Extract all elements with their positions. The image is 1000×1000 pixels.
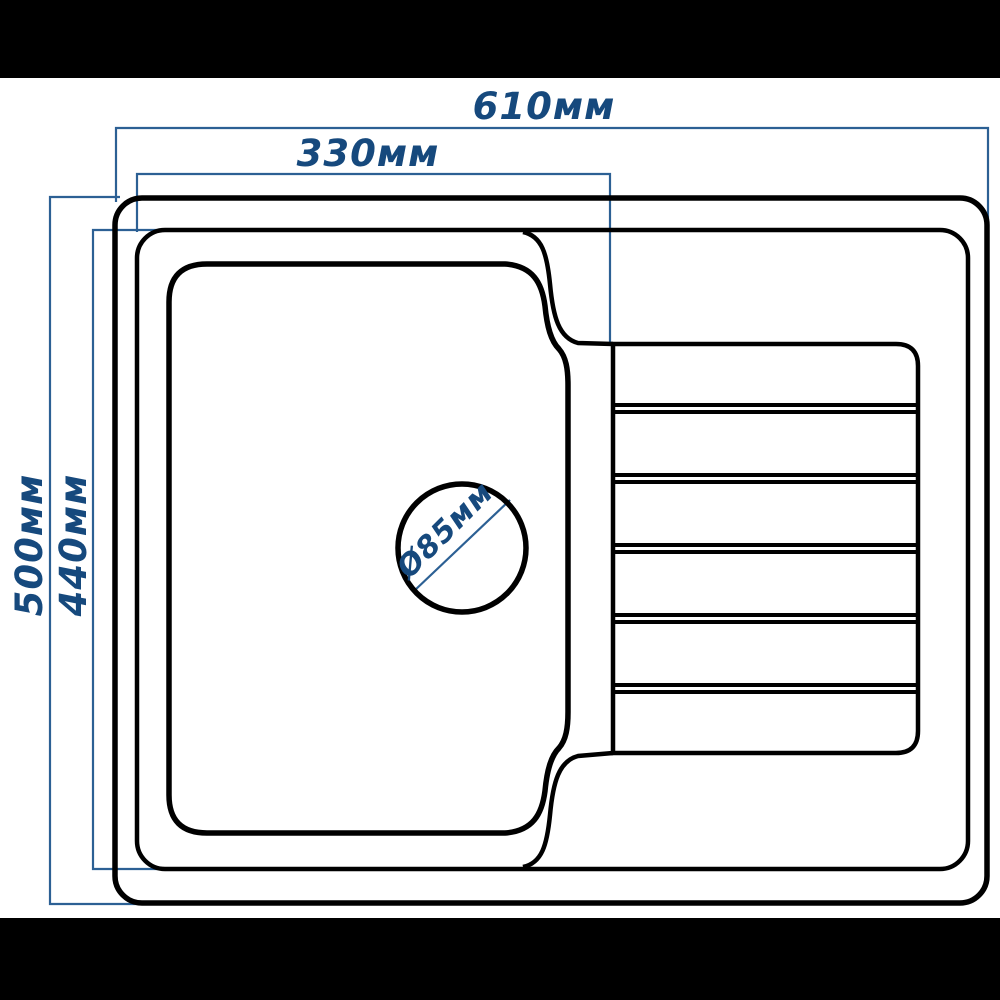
label-inner-depth: 440мм — [52, 474, 95, 618]
dimension-line-440 — [93, 230, 160, 869]
label-bowl-width: 330мм — [297, 132, 440, 175]
letterbox-top-bar — [0, 0, 1000, 78]
drainboard-neck-upper-curve — [523, 232, 613, 344]
bowl-outline — [169, 264, 568, 833]
sink-rim-outline — [137, 230, 968, 869]
label-overall-width: 610мм — [473, 85, 616, 128]
drainboard-neck-lower-curve — [523, 753, 613, 867]
label-overall-depth: 500мм — [8, 474, 51, 617]
letterbox-bottom-bar — [0, 918, 1000, 1000]
label-drain-diameter: Ø85мм — [389, 475, 501, 587]
drawing-canvas: 610мм 330мм 500мм 440мм Ø85мм — [0, 0, 1000, 1000]
drainboard-ridges — [613, 405, 918, 692]
sink-dimension-drawing: 610мм 330мм 500мм 440мм Ø85мм — [0, 0, 1000, 1000]
